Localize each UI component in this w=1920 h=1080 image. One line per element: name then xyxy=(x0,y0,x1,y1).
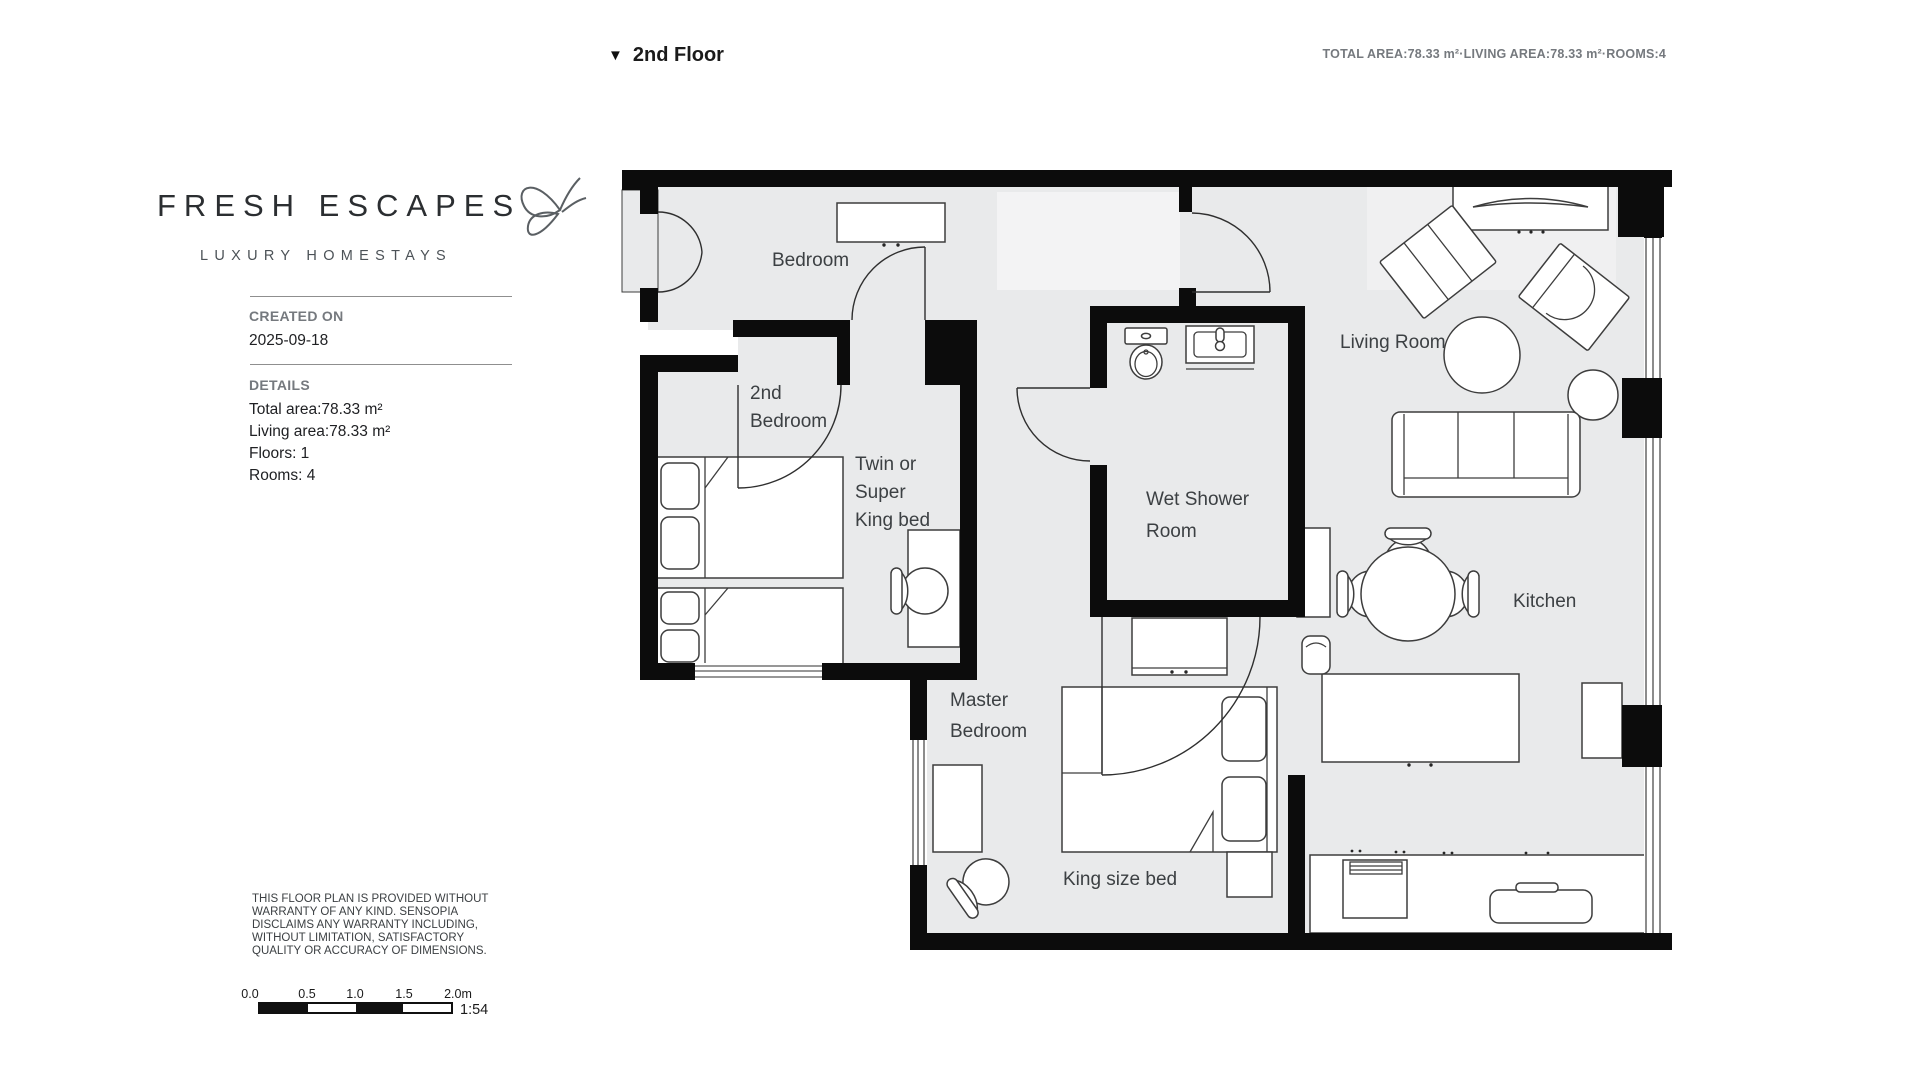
floorplan-drawing: Bedroom 2nd Bedroom Twin or Super King b… xyxy=(0,0,1920,1080)
label-king-bed: King size bed xyxy=(1063,869,1177,890)
window-master-left xyxy=(910,740,927,865)
twin-bed-2 xyxy=(650,588,843,666)
bedroom-dresser xyxy=(837,203,945,247)
window-second-bedroom xyxy=(695,663,822,680)
label-living-room: Living Room xyxy=(1340,332,1446,353)
label-second-bedroom-line1: 2nd xyxy=(750,383,782,404)
window-right-1 xyxy=(1644,238,1662,378)
second-bedroom-chair xyxy=(891,568,948,614)
kitchen-counter xyxy=(1310,850,1655,933)
kitchen-island xyxy=(1322,674,1519,767)
label-wet-shower-line1: Wet Shower xyxy=(1146,489,1250,510)
label-kitchen: Kitchen xyxy=(1513,591,1576,612)
label-master-line2: Bedroom xyxy=(950,721,1027,742)
sofa xyxy=(1392,412,1580,497)
label-twin-bed-line3: King bed xyxy=(855,510,930,531)
kettle xyxy=(1302,636,1330,674)
king-bed xyxy=(1062,687,1277,852)
kitchen-unit xyxy=(1582,683,1622,758)
dining-table xyxy=(1361,547,1455,641)
twin-bed-1 xyxy=(650,457,843,578)
label-twin-bed-line2: Super xyxy=(855,482,906,503)
master-closet xyxy=(1132,618,1227,675)
floorplan-page: ▼ 2nd Floor TOTAL AREA:78.33 m²·LIVING A… xyxy=(0,0,1920,1080)
window-right-3 xyxy=(1644,767,1662,933)
label-second-bedroom-line2: Bedroom xyxy=(750,411,827,432)
window-right-2 xyxy=(1644,438,1662,705)
label-twin-bed-line1: Twin or xyxy=(855,454,917,475)
entry-mat xyxy=(997,192,1180,290)
kitchen-sink xyxy=(1490,890,1592,923)
label-master-line1: Master xyxy=(950,690,1009,711)
coffee-table xyxy=(1444,317,1520,393)
nightstand xyxy=(1227,852,1272,897)
bathroom-sink xyxy=(1186,326,1254,369)
label-bedroom: Bedroom xyxy=(772,250,849,271)
master-desk xyxy=(933,765,982,852)
tv-console xyxy=(1453,183,1608,234)
label-wet-shower-line2: Room xyxy=(1146,521,1197,542)
